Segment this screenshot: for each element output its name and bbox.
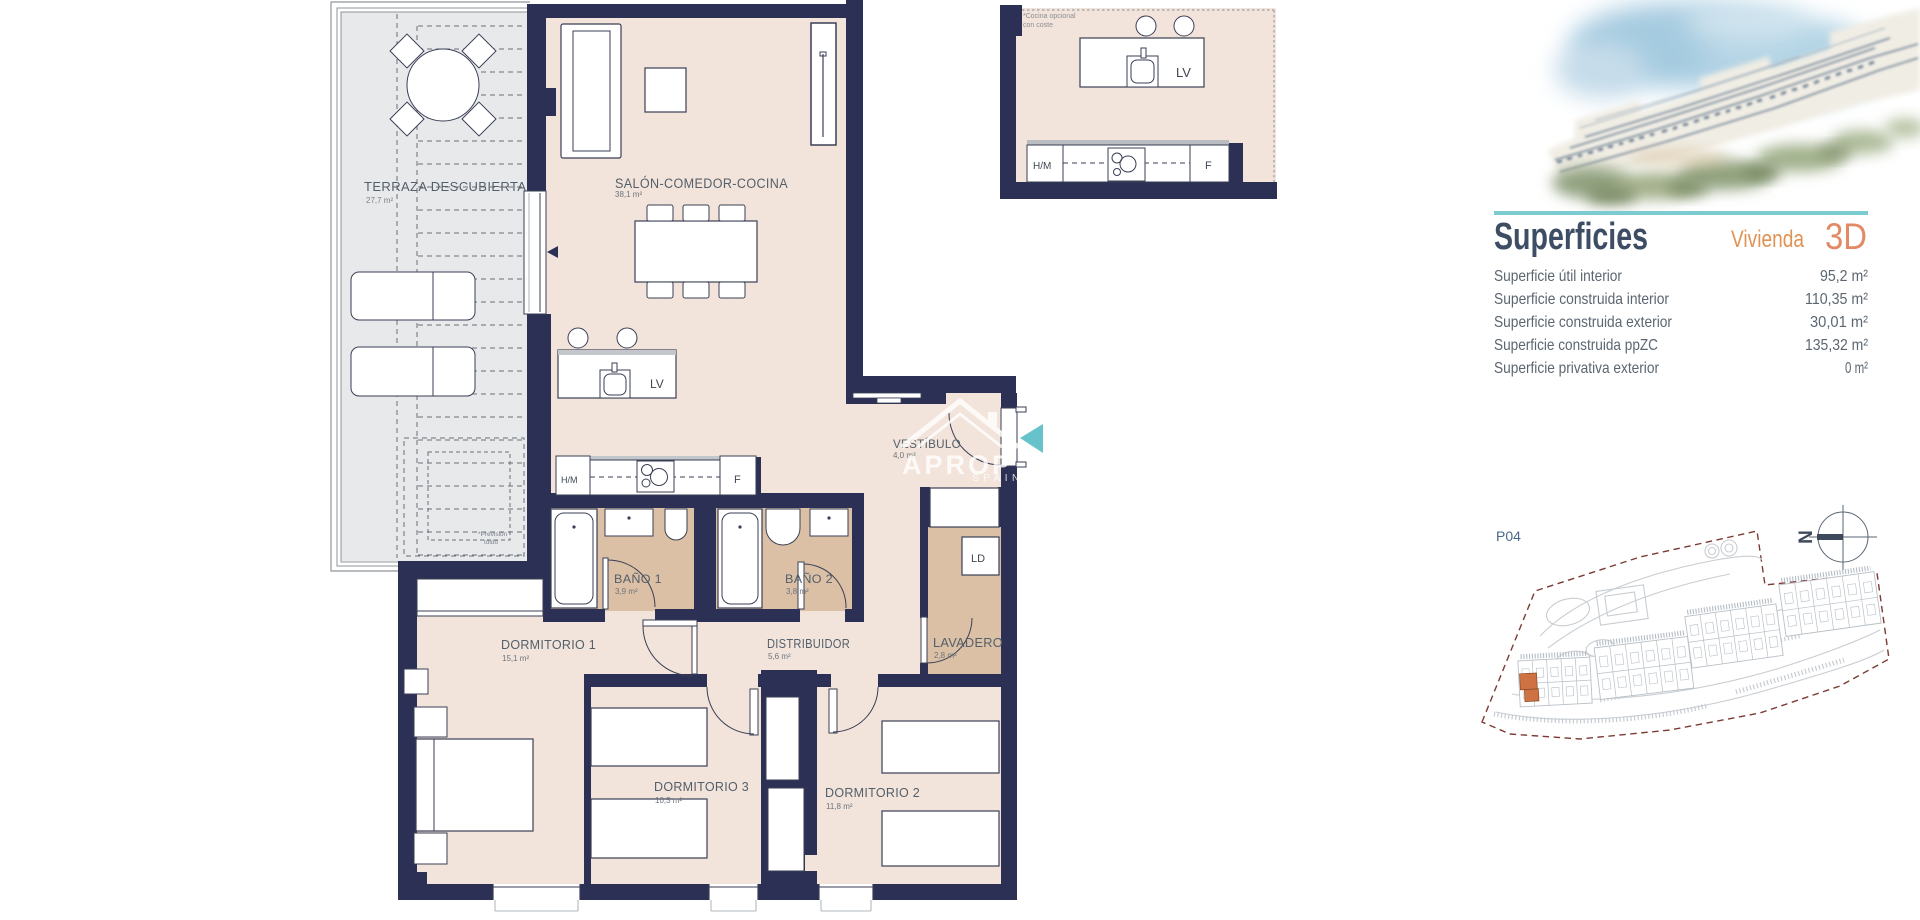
svg-text:DORMITORIO 2: DORMITORIO 2 [825,785,920,800]
svg-text:15,1 m²: 15,1 m² [502,654,529,663]
svg-text:H/M: H/M [561,475,578,485]
svg-text:F: F [1205,160,1212,172]
svg-text:DISTRIBUIDOR: DISTRIBUIDOR [767,637,850,651]
svg-text:95,2 m²: 95,2 m² [1820,268,1869,285]
svg-text:con coste: con coste [1023,22,1053,29]
svg-text:P04: P04 [1496,528,1521,544]
svg-text:3,8 m²: 3,8 m² [786,587,809,596]
svg-text:30,01 m²: 30,01 m² [1810,314,1869,331]
svg-text:LAVADERO: LAVADERO [933,636,1003,650]
svg-text:LD: LD [971,553,985,565]
svg-text:*Previsión: *Previsión [478,531,508,538]
svg-text:*Cocina opcional: *Cocina opcional [1023,13,1076,20]
svg-text:DORMITORIO 3: DORMITORIO 3 [654,779,749,794]
svg-text:0 m²: 0 m² [1845,360,1868,377]
svg-text:Superficie construida interior: Superficie construida interior [1494,291,1670,308]
svg-text:BAÑO 2: BAÑO 2 [785,572,833,586]
svg-text:LV: LV [1176,65,1191,80]
svg-text:10,3 m²: 10,3 m² [655,796,682,805]
svg-text:SALÓN-COMEDOR-COCINA: SALÓN-COMEDOR-COCINA [615,176,788,191]
svg-text:3,9 m²: 3,9 m² [615,587,638,596]
svg-text:2,8 m²: 2,8 m² [934,651,957,660]
svg-text:toldo: toldo [484,539,498,546]
svg-text:H/M: H/M [1033,161,1051,172]
svg-text:27,7 m²: 27,7 m² [366,196,393,205]
svg-text:Superficie privativa exterior: Superficie privativa exterior [1494,360,1660,377]
svg-text:BAÑO 1: BAÑO 1 [614,572,662,586]
svg-text:38,1 m²: 38,1 m² [615,190,642,199]
svg-text:110,35 m²: 110,35 m² [1805,291,1869,308]
svg-text:SPAIN: SPAIN [972,473,1024,484]
svg-text:Superficie útil interior: Superficie útil interior [1494,268,1623,285]
svg-text:TERRAZA DESCUBIERTA: TERRAZA DESCUBIERTA [364,179,526,194]
svg-text:3D: 3D [1825,216,1867,257]
svg-text:Vivienda: Vivienda [1731,226,1805,253]
svg-text:DORMITORIO 1: DORMITORIO 1 [501,637,596,652]
svg-text:N: N [1796,530,1817,544]
svg-text:Superficie construida exterior: Superficie construida exterior [1494,314,1673,331]
svg-text:Superficie construida ppZC: Superficie construida ppZC [1494,337,1658,354]
svg-text:5,6 m²: 5,6 m² [768,652,791,661]
svg-text:F: F [734,474,741,486]
svg-text:135,32 m²: 135,32 m² [1805,337,1869,354]
svg-text:Superficies: Superficies [1494,216,1648,258]
svg-text:11,8 m²: 11,8 m² [826,802,853,811]
svg-text:LV: LV [650,377,664,391]
